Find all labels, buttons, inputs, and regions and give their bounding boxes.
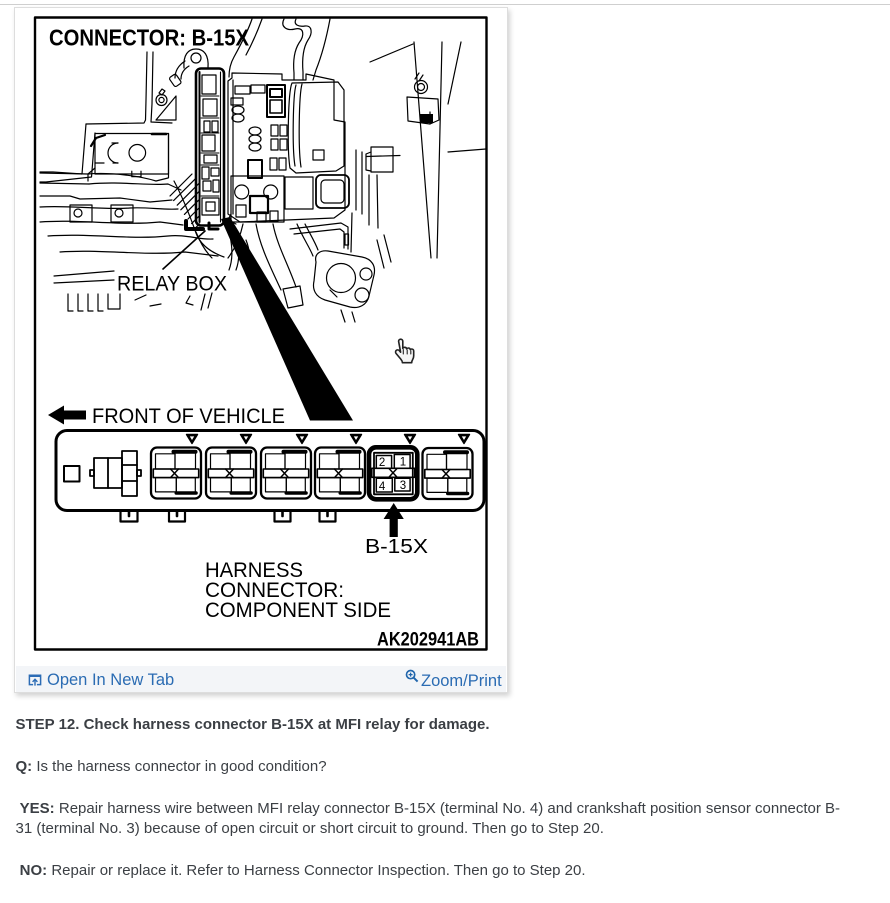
svg-text:1: 1 [400,456,406,468]
svg-text:2: 2 [379,457,385,469]
svg-text:4: 4 [379,481,386,493]
svg-text:FRONT OF VEHICLE: FRONT OF VEHICLE [92,405,285,428]
svg-text:COMPONENT SIDE: COMPONENT SIDE [205,599,391,622]
svg-text:RELAY BOX: RELAY BOX [117,273,227,296]
svg-text:B-15X: B-15X [365,535,428,558]
svg-text:AK202941AB: AK202941AB [377,630,479,651]
svg-text:3: 3 [400,480,406,492]
svg-text:CONNECTOR: B-15X: CONNECTOR: B-15X [49,25,250,51]
